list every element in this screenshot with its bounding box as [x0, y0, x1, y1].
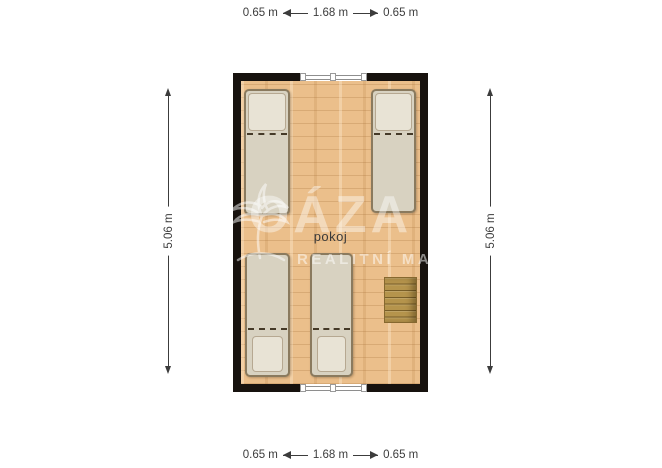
room-plan: pokoj OÁZA REALITNÍ MAKLÉŘ	[233, 73, 428, 392]
window-post	[300, 73, 306, 81]
bed-divider	[248, 328, 287, 330]
dimension-row-top: 0.65 m 1.68 m 0.65 m	[233, 6, 428, 20]
window-bottom	[300, 384, 367, 392]
floorplan-canvas: 0.65 m 1.68 m 0.65 m 0.65 m 1.68 m 0.65 …	[0, 0, 662, 468]
dim-label-left: 5.06 m	[162, 206, 176, 255]
dim-label-top-right: 0.65 m	[383, 7, 418, 19]
window-top	[300, 73, 367, 81]
dim-label-top-left: 0.65 m	[243, 7, 278, 19]
bed-divider	[247, 133, 287, 135]
room-label: pokoj	[233, 229, 428, 244]
dim-label-bottom-center: 1.68 m	[313, 449, 348, 461]
stairs	[384, 277, 417, 323]
pillow	[252, 336, 283, 372]
arrow-down-icon	[165, 366, 171, 374]
arrow-left-icon	[283, 9, 308, 17]
bed-top-left	[244, 89, 290, 215]
dimension-row-bottom: 0.65 m 1.68 m 0.65 m	[233, 448, 428, 462]
window-post	[330, 73, 336, 81]
pillow	[375, 93, 412, 131]
window-post	[361, 73, 367, 81]
arrow-right-icon	[353, 451, 378, 459]
bed-top-right	[371, 89, 416, 213]
arrow-left-icon	[283, 451, 308, 459]
window-post	[361, 384, 367, 392]
dim-label-right: 5.06 m	[484, 206, 498, 255]
pillow	[248, 93, 286, 131]
dim-label-bottom-left: 0.65 m	[243, 449, 278, 461]
window-post	[300, 384, 306, 392]
dim-label-bottom-right: 0.65 m	[383, 449, 418, 461]
dimension-right: 5.06 m	[484, 88, 497, 374]
arrow-up-icon	[487, 88, 493, 96]
dimension-left: 5.06 m	[162, 88, 175, 374]
bed-divider	[374, 133, 413, 135]
arrow-up-icon	[165, 88, 171, 96]
window-post	[330, 384, 336, 392]
pillow	[317, 336, 346, 372]
arrow-down-icon	[487, 366, 493, 374]
bed-bottom-left	[245, 253, 290, 377]
arrow-right-icon	[353, 9, 378, 17]
bed-bottom-center	[310, 253, 353, 377]
bed-divider	[313, 328, 350, 330]
dim-label-top-center: 1.68 m	[313, 7, 348, 19]
